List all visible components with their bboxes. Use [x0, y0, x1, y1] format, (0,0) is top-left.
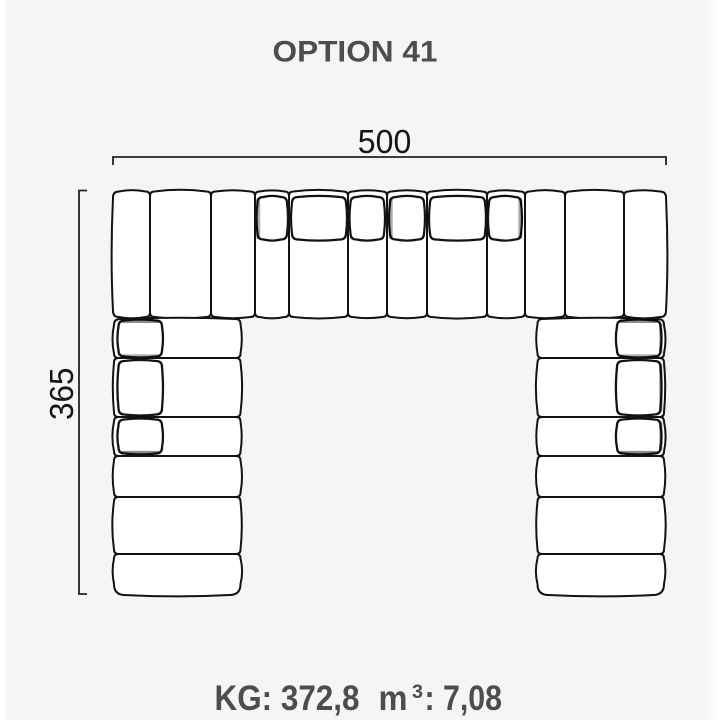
svg-text:m: m — [379, 679, 408, 718]
svg-text:500: 500 — [358, 124, 412, 161]
svg-text:OPTION 41: OPTION 41 — [273, 35, 438, 68]
svg-text:: 7,08: : 7,08 — [425, 679, 503, 718]
svg-text:365: 365 — [44, 368, 81, 421]
svg-text:KG: 372,8: KG: 372,8 — [215, 679, 360, 718]
svg-text:3: 3 — [412, 681, 423, 703]
